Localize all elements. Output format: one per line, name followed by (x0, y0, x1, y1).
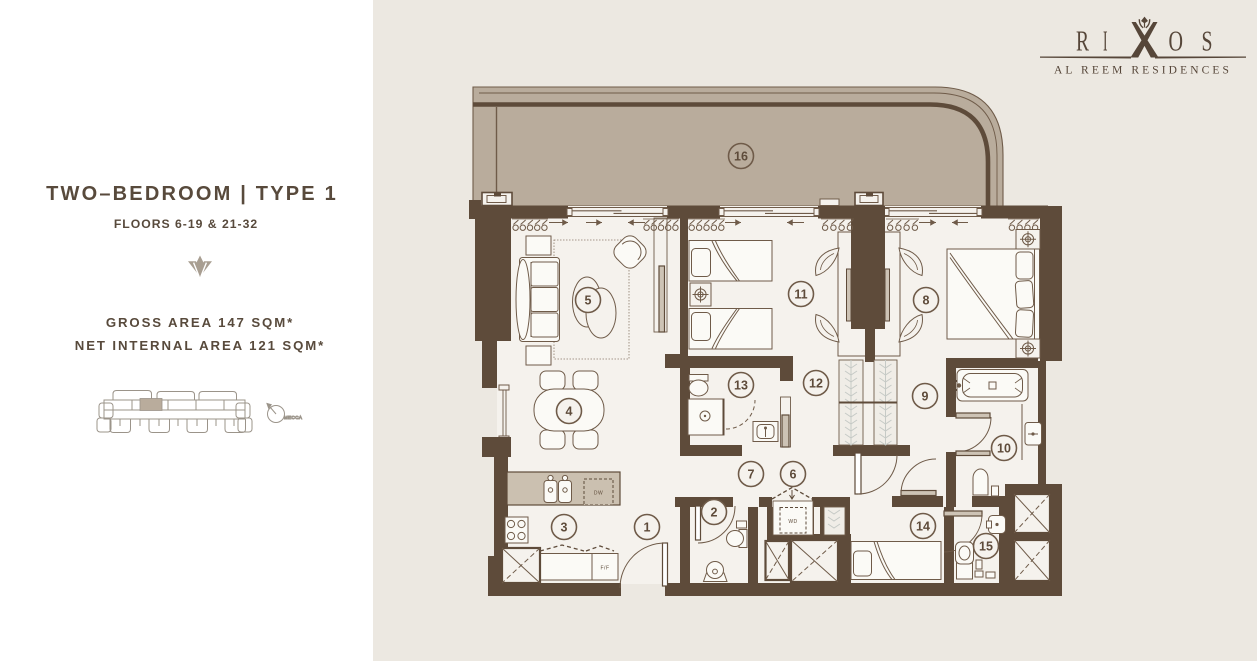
svg-text:5: 5 (585, 294, 592, 308)
svg-text:O: O (1169, 27, 1184, 58)
svg-text:2: 2 (711, 506, 718, 520)
svg-text:1: 1 (644, 521, 651, 535)
svg-text:F/F: F/F (601, 566, 610, 572)
svg-text:9: 9 (922, 390, 929, 404)
svg-text:MECCA: MECCA (284, 415, 302, 420)
svg-text:12: 12 (809, 377, 823, 391)
svg-text:16: 16 (734, 150, 748, 164)
svg-text:7: 7 (748, 468, 755, 482)
svg-text:15: 15 (979, 540, 993, 554)
svg-text:8: 8 (923, 294, 930, 308)
svg-text:4: 4 (566, 405, 573, 419)
svg-text:6: 6 (790, 468, 797, 482)
svg-text:I: I (1103, 27, 1108, 58)
svg-text:3: 3 (561, 521, 568, 535)
svg-text:WD: WD (788, 519, 797, 525)
svg-text:14: 14 (916, 520, 930, 534)
svg-text:DW: DW (594, 491, 603, 497)
svg-text:S: S (1202, 27, 1213, 58)
svg-text:R: R (1076, 27, 1089, 58)
svg-text:AL REEM RESIDENCES: AL REEM RESIDENCES (1054, 65, 1232, 77)
svg-text:13: 13 (734, 379, 748, 393)
svg-text:11: 11 (794, 288, 807, 302)
svg-text:10: 10 (997, 442, 1011, 456)
